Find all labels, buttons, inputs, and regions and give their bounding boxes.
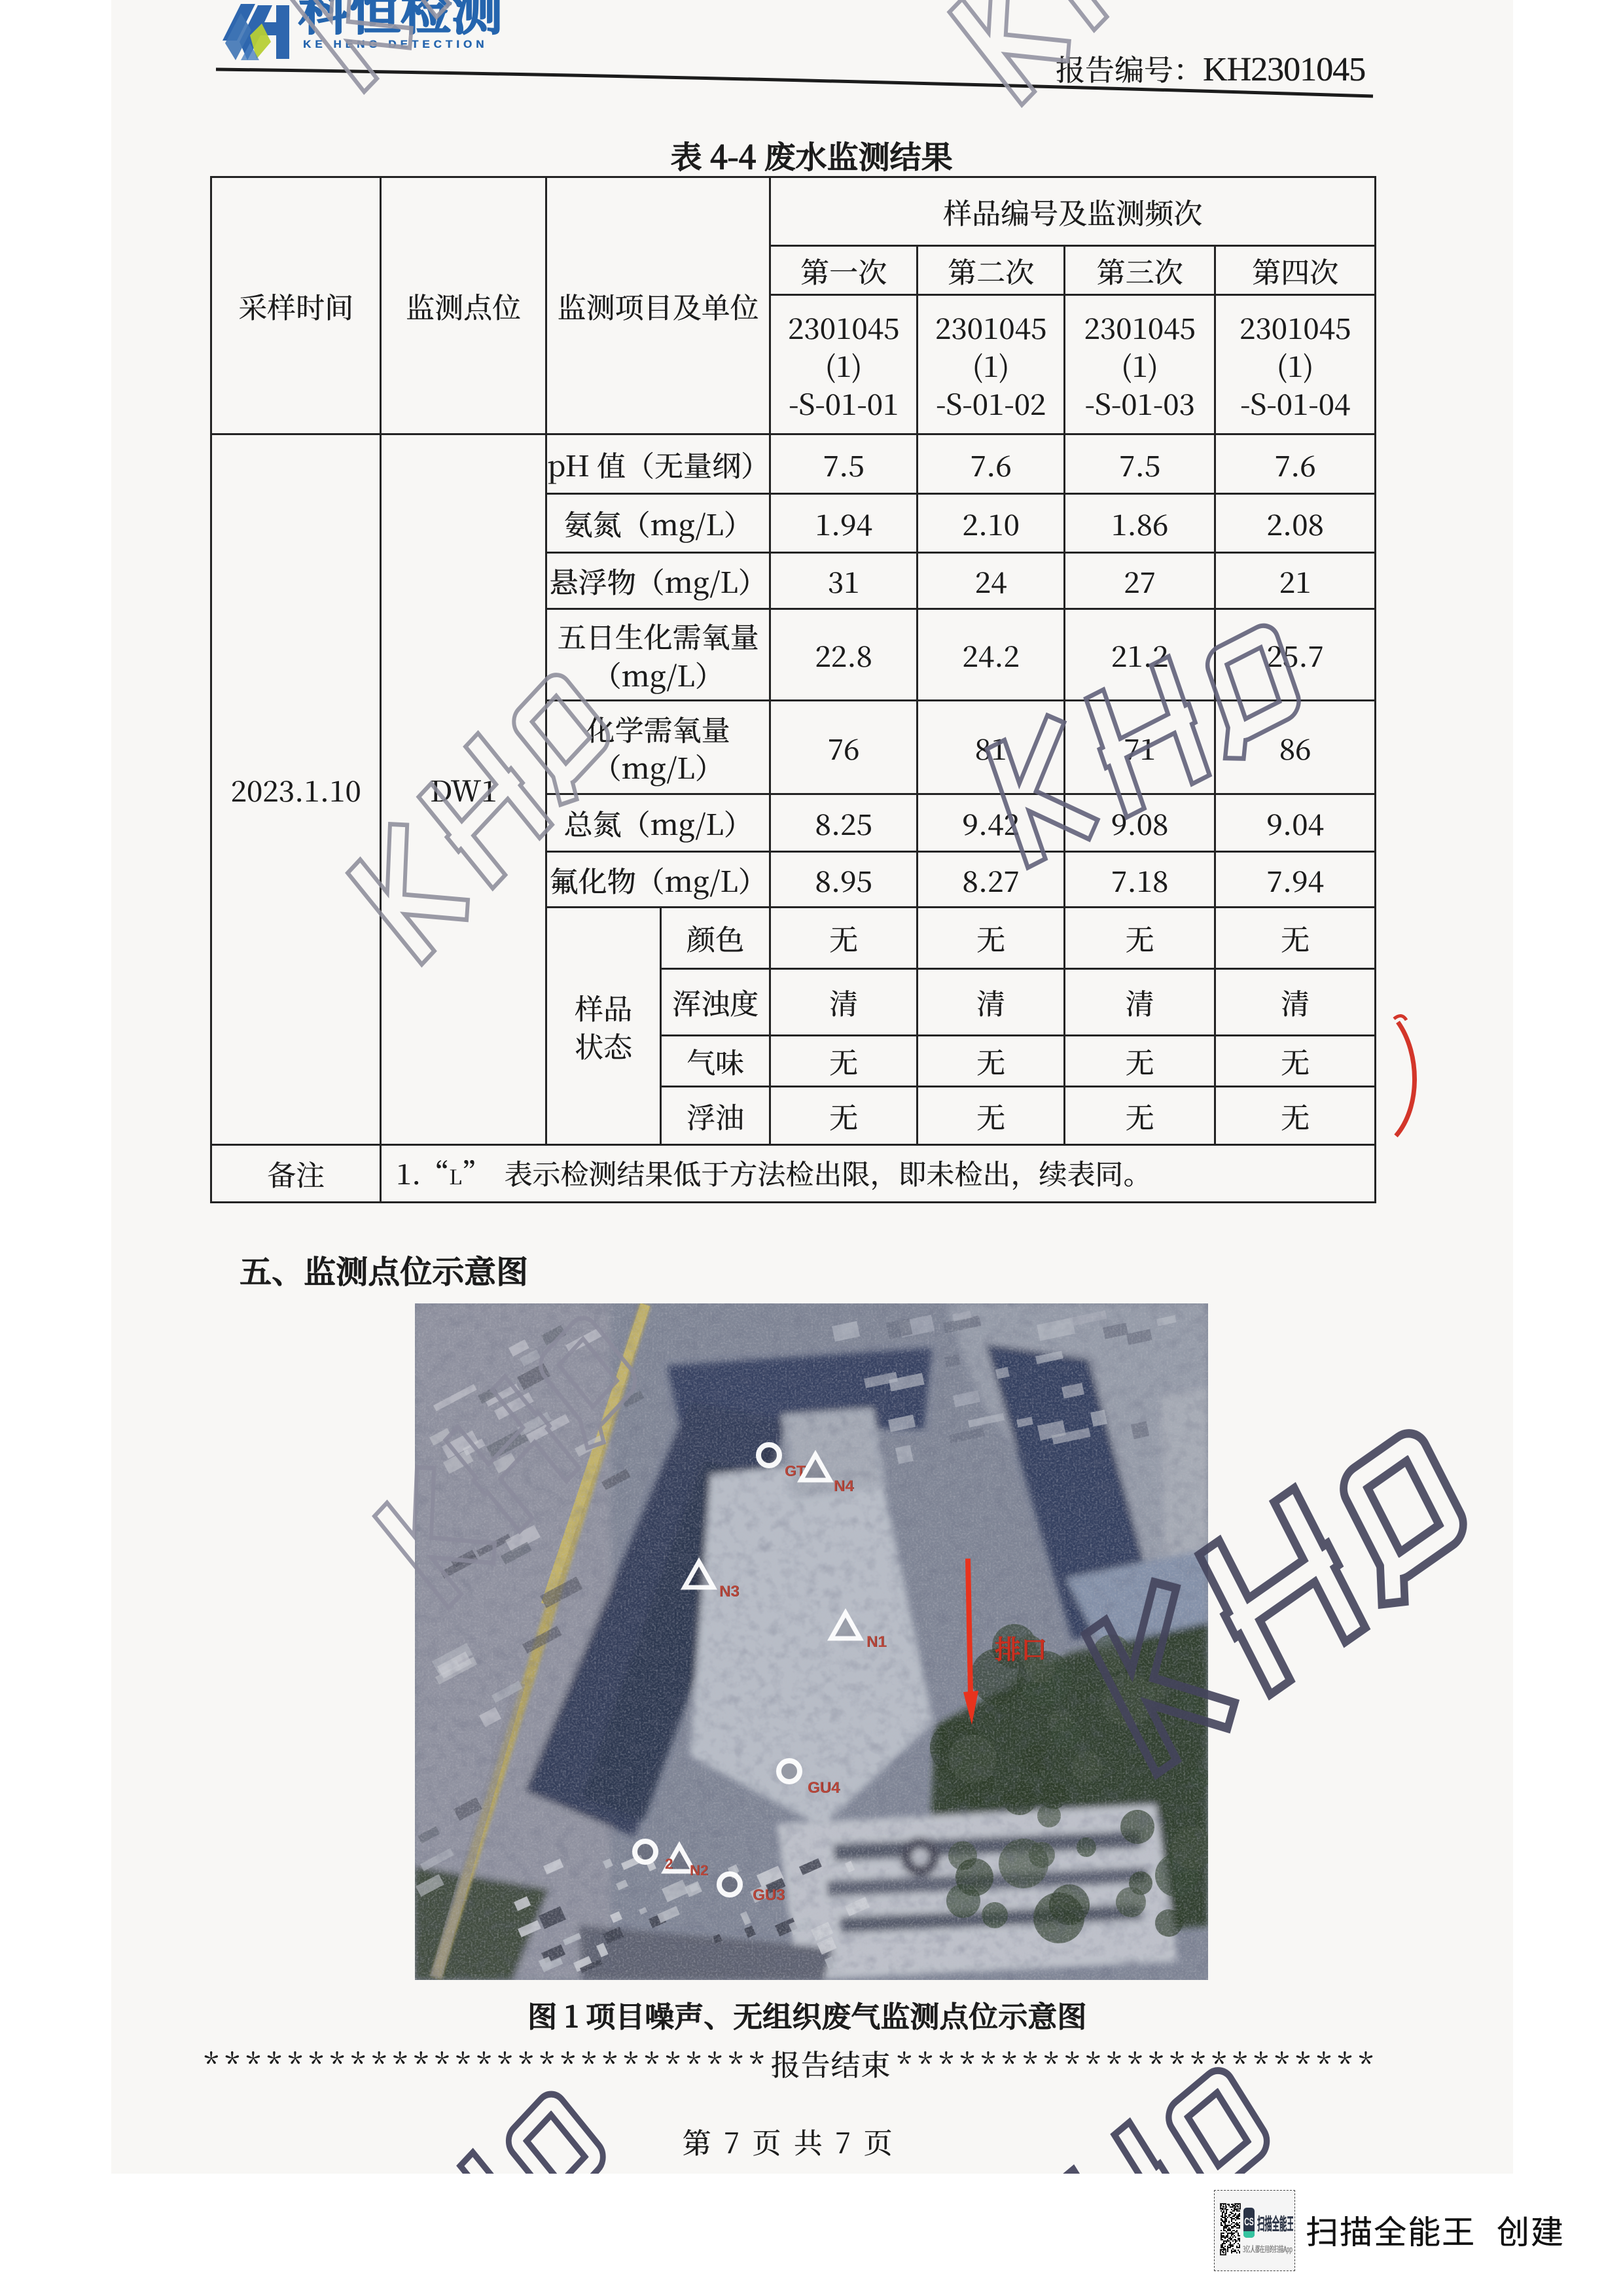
svg-text:GU3: GU3 (753, 1886, 785, 1904)
svg-text:GU4: GU4 (808, 1779, 840, 1797)
svg-text:CS: CS (1244, 2215, 1254, 2227)
svg-text:N1: N1 (866, 1633, 887, 1651)
svg-text:3亿人都在用的扫描App: 3亿人都在用的扫描App (1243, 2243, 1293, 2255)
svg-text:排口: 排口 (995, 1629, 1047, 1667)
svg-text:2: 2 (665, 1856, 673, 1872)
svg-text:扫描全能王: 扫描全能王 (1257, 2210, 1293, 2235)
svg-text:N2: N2 (690, 1862, 708, 1879)
svg-text:N3: N3 (719, 1583, 740, 1600)
svg-text:N4: N4 (834, 1477, 854, 1495)
